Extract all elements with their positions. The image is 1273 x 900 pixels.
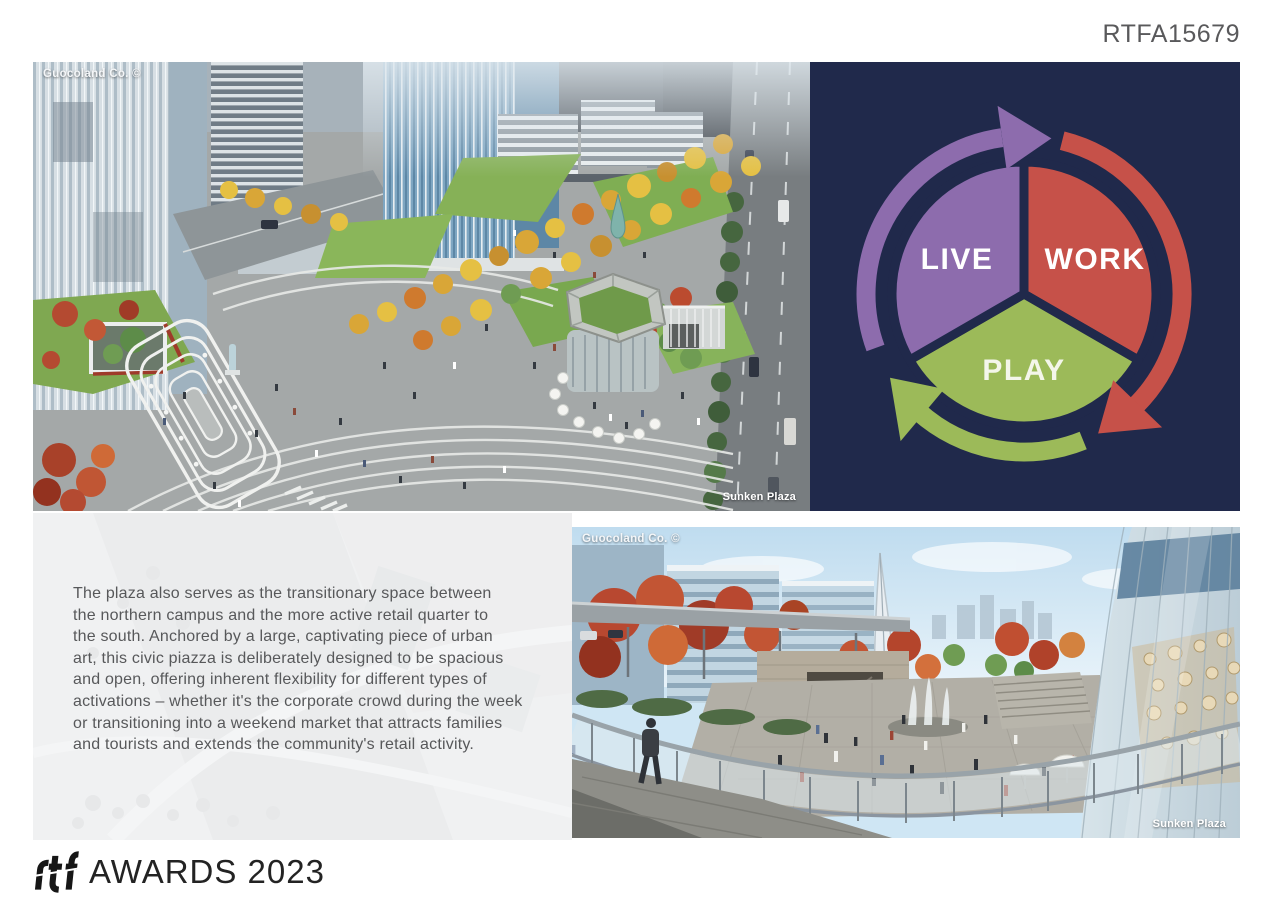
hexagon-pavilion [567, 274, 665, 392]
play-label: PLAY [982, 354, 1065, 387]
sunken-plaza-render: Guocoland Co. © Sunken Plaza [572, 527, 1240, 838]
image-credit: Guocoland Co. © [43, 68, 141, 80]
work-label: WORK [1045, 243, 1146, 276]
aerial-plaza-render: Guocoland Co. © Sunken Plaza [33, 62, 810, 511]
atmospheric-haze [363, 62, 810, 177]
image-caption: Sunken Plaza [723, 491, 796, 503]
white-pavilion [663, 307, 725, 349]
awards-text: AWARDS 2023 [89, 853, 325, 891]
rtf-logo-icon [33, 849, 79, 895]
live-label: LIVE [921, 243, 994, 276]
image-caption: Sunken Plaza [1153, 818, 1226, 830]
description-text: The plaza also serves as the transitiona… [73, 583, 551, 756]
presentation-board: RTFA15679 [0, 0, 1273, 900]
submission-ref-code: RTFA15679 [1103, 20, 1240, 49]
live-work-play-diagram: LIVE WORK PLAY [810, 62, 1240, 511]
description-panel: The plaza also serves as the transitiona… [33, 513, 572, 840]
plaza-view-illustration [572, 527, 1240, 838]
image-credit: Guocoland Co. © [582, 533, 680, 545]
plaza-stairs [992, 672, 1092, 729]
footer-logo: AWARDS 2023 [33, 849, 325, 895]
aerial-render-illustration [33, 62, 810, 511]
